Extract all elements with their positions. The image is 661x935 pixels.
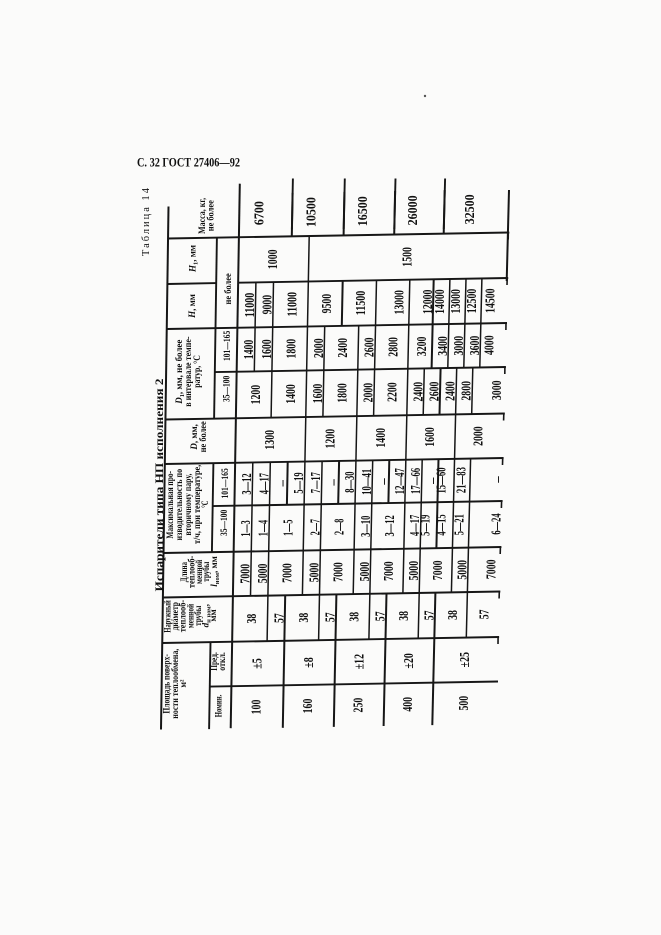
svg-text:Номин.: Номин.	[213, 695, 223, 718]
svg-text:2200: 2200	[385, 382, 400, 402]
svg-text:С. 32 ГОСТ 27406—92: С. 32 ГОСТ 27406—92	[137, 155, 240, 170]
svg-text:1600: 1600	[310, 383, 325, 403]
svg-text:5—19: 5—19	[291, 472, 306, 493]
svg-text:3—12: 3—12	[239, 473, 254, 494]
svg-text:4—17: 4—17	[256, 473, 271, 494]
svg-text:1800: 1800	[284, 339, 299, 359]
svg-text:7000: 7000	[484, 559, 499, 579]
svg-text:1—3: 1—3	[238, 520, 253, 537]
svg-text:35—100: 35—100	[221, 375, 231, 402]
svg-text:2—7: 2—7	[307, 519, 322, 536]
svg-text:57: 57	[421, 610, 436, 620]
svg-text:35—100: 35—100	[219, 509, 229, 536]
svg-text:250: 250	[351, 697, 366, 712]
svg-text:3—10: 3—10	[358, 515, 373, 536]
svg-text:±8: ±8	[301, 657, 316, 668]
svg-text:2000: 2000	[311, 338, 326, 358]
svg-text:не более: не более	[223, 273, 233, 304]
svg-text:°С: °С	[200, 501, 210, 508]
svg-text:17—66: 17—66	[408, 468, 423, 494]
svg-text:5000: 5000	[306, 562, 321, 582]
svg-text:7000: 7000	[280, 563, 295, 583]
svg-text:5—21: 5—21	[452, 514, 467, 535]
svg-text:9000: 9000	[260, 294, 275, 314]
svg-text:5—19: 5—19	[418, 514, 433, 535]
svg-text:7000: 7000	[430, 560, 445, 580]
svg-text:12—47: 12—47	[392, 468, 407, 494]
svg-text:38: 38	[396, 611, 411, 621]
svg-text:2400: 2400	[410, 382, 425, 402]
svg-text:1200: 1200	[248, 384, 263, 404]
svg-text:—: —	[274, 480, 289, 487]
svg-text:12500: 12500	[464, 288, 479, 313]
svg-text:2600: 2600	[427, 381, 442, 401]
svg-text:38: 38	[445, 610, 460, 620]
svg-text:мм: мм	[208, 609, 218, 621]
svg-text:11500: 11500	[353, 290, 368, 315]
svg-text:57: 57	[477, 609, 492, 619]
svg-text:38: 38	[244, 613, 259, 623]
svg-text:ратур, °С: ратур, °С	[192, 355, 202, 388]
svg-text:14000: 14000	[432, 289, 447, 314]
svg-text:11000: 11000	[285, 292, 300, 317]
svg-text:1300: 1300	[262, 430, 277, 450]
svg-text:6700: 6700	[252, 201, 267, 225]
svg-text:14500: 14500	[483, 288, 498, 313]
svg-text:1600: 1600	[259, 339, 274, 359]
svg-text:5000: 5000	[454, 560, 469, 580]
svg-text:6—24: 6—24	[489, 513, 504, 534]
svg-text:3200: 3200	[414, 336, 429, 356]
svg-text:1800: 1800	[334, 383, 349, 403]
svg-text:5000: 5000	[255, 563, 270, 583]
svg-text:16500: 16500	[356, 196, 371, 226]
svg-text:1000: 1000	[265, 249, 280, 269]
svg-text:2—8: 2—8	[332, 518, 347, 535]
svg-text:7000: 7000	[331, 562, 346, 582]
svg-text:57: 57	[323, 612, 338, 622]
svg-text:500: 500	[456, 696, 471, 711]
svg-text:4000: 4000	[482, 335, 497, 355]
svg-text:10—41: 10—41	[359, 469, 374, 495]
svg-text:9500: 9500	[319, 293, 334, 313]
svg-text:—: —	[490, 476, 505, 483]
svg-text:21—83: 21—83	[454, 467, 469, 493]
svg-text:откл.: откл.	[217, 652, 227, 671]
svg-text:57: 57	[271, 613, 286, 623]
svg-text:5000: 5000	[406, 561, 421, 581]
svg-text:—: —	[375, 478, 390, 485]
svg-text:13000: 13000	[448, 289, 463, 314]
svg-text:не более: не более	[205, 200, 215, 231]
svg-text:м²: м²	[178, 679, 188, 687]
svg-text:1400: 1400	[373, 428, 388, 448]
svg-text:15—60: 15—60	[434, 467, 449, 493]
svg-text:8—30: 8—30	[342, 471, 357, 492]
svg-text:—: —	[325, 479, 340, 486]
svg-text:2000: 2000	[361, 382, 376, 402]
svg-text:±5: ±5	[249, 658, 264, 669]
svg-text:400: 400	[400, 697, 415, 712]
svg-text:3—12: 3—12	[382, 515, 397, 536]
svg-text:H, мм: H, мм	[187, 294, 197, 319]
svg-text:5000: 5000	[357, 561, 372, 581]
svg-text:7—17: 7—17	[308, 472, 323, 493]
svg-text:2800: 2800	[386, 337, 401, 357]
svg-text:100: 100	[249, 699, 264, 714]
svg-text:101—165: 101—165	[220, 468, 230, 499]
svg-text:2400: 2400	[335, 338, 350, 358]
svg-text:38: 38	[296, 612, 311, 622]
svg-text:26000: 26000	[406, 195, 421, 225]
svg-text:1200: 1200	[322, 429, 337, 449]
svg-text:1—4: 1—4	[256, 520, 271, 537]
svg-text:3000: 3000	[489, 380, 504, 400]
svg-text:1400: 1400	[241, 339, 256, 359]
svg-text:трубы: трубы	[193, 606, 203, 626]
svg-text:2400: 2400	[443, 381, 458, 401]
svg-text:1500: 1500	[400, 247, 415, 267]
svg-text:1400: 1400	[283, 384, 298, 404]
svg-text:±12: ±12	[352, 654, 367, 670]
svg-text:1600: 1600	[422, 427, 437, 447]
svg-text:11000: 11000	[242, 292, 257, 317]
svg-text:7000: 7000	[237, 564, 252, 584]
svg-text:2800: 2800	[459, 381, 474, 401]
svg-text:±25: ±25	[457, 652, 472, 668]
svg-text:57: 57	[373, 611, 388, 621]
svg-text:4—15: 4—15	[434, 514, 449, 535]
svg-text:3400: 3400	[435, 336, 450, 356]
svg-text:3600: 3600	[467, 335, 482, 355]
svg-text:13000: 13000	[392, 290, 407, 315]
svg-text:не более: не более	[198, 421, 208, 452]
svg-text:3000: 3000	[451, 336, 466, 356]
svg-text:160: 160	[300, 698, 315, 713]
svg-text:38: 38	[347, 611, 362, 621]
svg-text:±20: ±20	[401, 653, 416, 669]
svg-text:Таблица 14: Таблица 14	[141, 186, 152, 256]
svg-text:2000: 2000	[470, 426, 485, 446]
svg-text:7000: 7000	[381, 561, 396, 581]
svg-text:101—165: 101—165	[222, 330, 232, 361]
svg-text:Испарители типа НП исполнения: Испарители типа НП исполнения 2	[152, 378, 166, 591]
svg-text:10500: 10500	[305, 197, 320, 227]
svg-text:32500: 32500	[463, 194, 478, 224]
svg-text:2600: 2600	[362, 337, 377, 357]
svg-text:1—5: 1—5	[280, 519, 295, 536]
